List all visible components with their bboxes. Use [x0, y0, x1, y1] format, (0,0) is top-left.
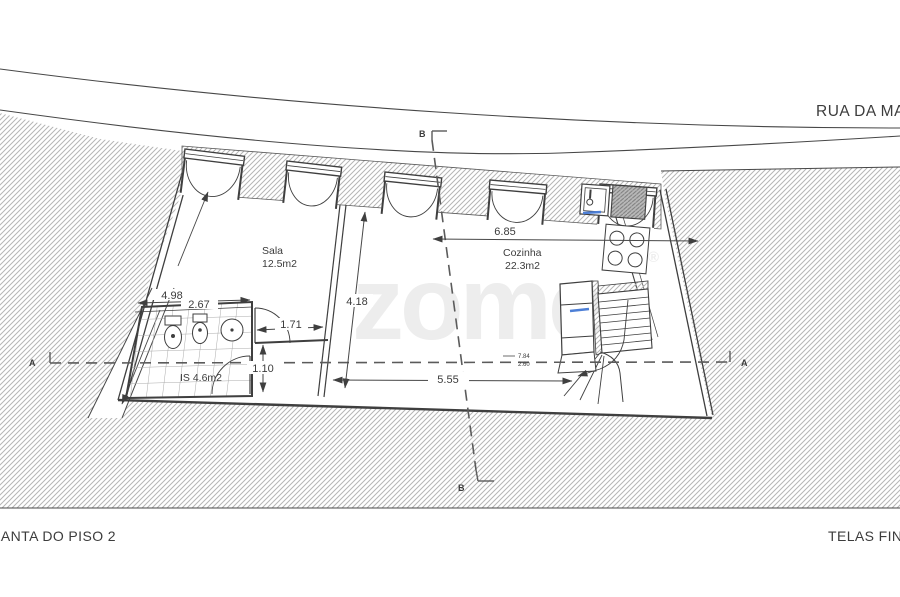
window: [380, 172, 441, 222]
dim-text: 5.55: [437, 374, 458, 386]
drawing-stage-label: TELAS FINAIS: [828, 528, 900, 544]
section-marker-b-bottom: B: [458, 483, 465, 493]
street-label: RUA DA MADALENA: [816, 103, 900, 120]
window: [179, 149, 244, 202]
section-marker-a-left: A: [29, 358, 36, 368]
dim-text: 1.10: [252, 363, 273, 375]
dim-text: 2.67: [188, 299, 209, 311]
level-text: 7.84: [518, 354, 530, 360]
sala-name: Sala: [262, 245, 283, 257]
right-building-hatch: [661, 167, 900, 419]
dim-hall-width: 5.55: [333, 372, 572, 386]
window: [486, 180, 546, 227]
bidet-icon: [193, 314, 208, 344]
section-marker-b-top: B: [419, 129, 426, 139]
stairs: [558, 281, 652, 404]
window: [282, 161, 342, 211]
toilet-icon: [165, 316, 182, 349]
dim-door-width: 1.71: [257, 318, 323, 331]
section-marker-a-right: A: [741, 358, 748, 368]
stair-treads: [598, 289, 652, 353]
street-band: [0, 69, 900, 154]
cozinha-area: 22.3m2: [505, 260, 540, 272]
blue-marker: [583, 212, 601, 213]
sala-area: 12.5m2: [262, 258, 297, 270]
cozinha-name: Cozinha: [503, 247, 542, 259]
dim-text: 1.71: [280, 319, 301, 331]
floor-plan-page: zome ®: [0, 0, 900, 597]
stove-icon: [602, 224, 650, 274]
dim-text: 6.85: [494, 226, 515, 238]
dim-text: 4.98: [161, 290, 182, 302]
entrance-arrow: [178, 192, 208, 266]
level-text: 2.60: [518, 362, 530, 368]
stair-closet: [560, 281, 594, 355]
duct-shaft: [611, 185, 647, 219]
sink-icon: [580, 184, 610, 216]
dim-text: 4.18: [346, 296, 367, 308]
drawing-title: PLANTA DO PISO 2: [0, 528, 116, 544]
watermark-registered-icon: ®: [648, 249, 659, 266]
washbasin-icon: [221, 319, 243, 341]
floor-plan-canvas: zome ®: [0, 0, 900, 597]
